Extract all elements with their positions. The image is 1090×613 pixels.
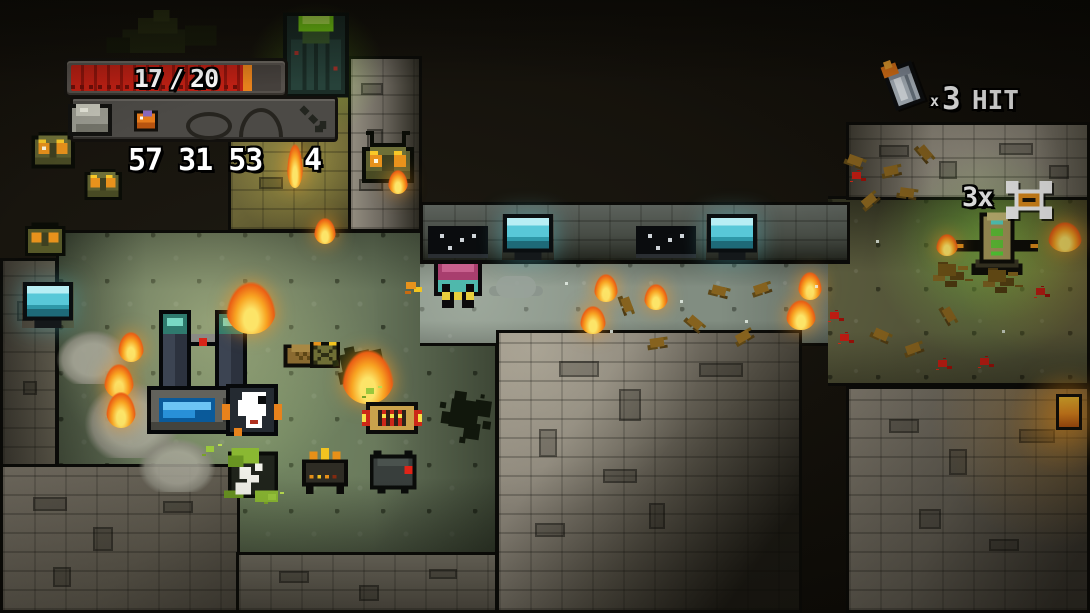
slime-bits <box>366 388 374 394</box>
counter-value: 53 <box>228 146 262 176</box>
wall-bottom-right <box>846 386 1090 613</box>
burning-debris <box>594 274 618 302</box>
stack-indicator: 3x <box>962 180 1062 220</box>
grenade-canister-icon <box>868 48 938 119</box>
alien-pod[interactable] <box>78 166 128 206</box>
debris-pile <box>938 264 956 276</box>
small-flame <box>936 234 958 256</box>
burst-icon <box>1006 181 1052 219</box>
star-panel <box>428 226 488 258</box>
health-max: 20 <box>190 66 218 91</box>
wall-bottom-mid <box>236 552 498 613</box>
exit-door-green-lamp[interactable] <box>283 12 349 98</box>
star-panel <box>636 226 696 258</box>
debris-pile <box>988 270 1006 282</box>
small-flame <box>106 392 136 428</box>
small-flame <box>1048 222 1082 252</box>
alien-enemy[interactable] <box>426 256 490 312</box>
rubble <box>138 438 216 492</box>
slime-bits <box>206 446 214 452</box>
blood-splat <box>830 312 839 319</box>
dark-splatter <box>448 398 480 430</box>
blood-splat <box>1036 288 1045 295</box>
blood-splat <box>980 358 989 365</box>
game-viewport[interactable]: 17 / 20 57 31 53 4 x 3 <box>0 0 1090 613</box>
blood-splat <box>938 360 947 367</box>
rat-creature[interactable] <box>362 446 424 494</box>
rock-icon[interactable] <box>64 96 116 140</box>
item-drop[interactable] <box>406 282 416 289</box>
torch-flame <box>287 144 303 188</box>
burning-debris <box>580 306 606 334</box>
burning-debris <box>798 272 822 300</box>
blood-splat <box>852 172 861 179</box>
tnt-bundle[interactable] <box>362 398 422 438</box>
explosion <box>342 350 394 404</box>
small-flame <box>118 332 144 362</box>
wrecked-vehicle <box>98 6 233 61</box>
health-text: 17 / 20 <box>67 61 285 95</box>
counter-value: 57 <box>128 146 162 176</box>
orange-tool-icon[interactable] <box>131 107 161 135</box>
empty-slot-dome[interactable] <box>239 108 283 137</box>
smoke-puff <box>496 276 536 298</box>
slime-bits <box>268 494 276 500</box>
stack-count-label: 3x <box>962 184 993 211</box>
debris <box>649 337 664 348</box>
small-flame <box>314 218 336 244</box>
burning-debris <box>786 300 816 330</box>
wall-lamp <box>1056 394 1082 430</box>
ammo-counters: 57 31 53 <box>128 146 262 176</box>
health-separator: / <box>169 66 183 91</box>
debris <box>899 187 914 198</box>
hit-label: HIT <box>972 88 1019 114</box>
explosion <box>226 282 276 334</box>
blood-splat <box>840 334 849 341</box>
small-flame <box>388 170 408 194</box>
hit-count: 3 <box>942 84 960 115</box>
level-number: 4 <box>304 146 321 176</box>
burning-debris <box>644 284 668 310</box>
wall-monitor <box>22 282 74 328</box>
aim-arrow-icon[interactable] <box>298 105 332 137</box>
hit-indicator: x 3 HIT <box>876 56 1046 120</box>
counter-value: 31 <box>178 146 212 176</box>
alien-pod[interactable] <box>18 222 72 260</box>
wall-monitor <box>706 214 758 260</box>
health-current: 17 <box>134 66 162 91</box>
wall-center <box>496 330 802 613</box>
player-character[interactable] <box>222 380 282 440</box>
hit-times-symbol: x <box>930 94 938 109</box>
detonator-device[interactable] <box>298 444 352 494</box>
empty-slot-oval[interactable] <box>186 112 232 140</box>
wall-monitor <box>502 214 554 260</box>
health-bar: 17 / 20 <box>64 58 288 98</box>
